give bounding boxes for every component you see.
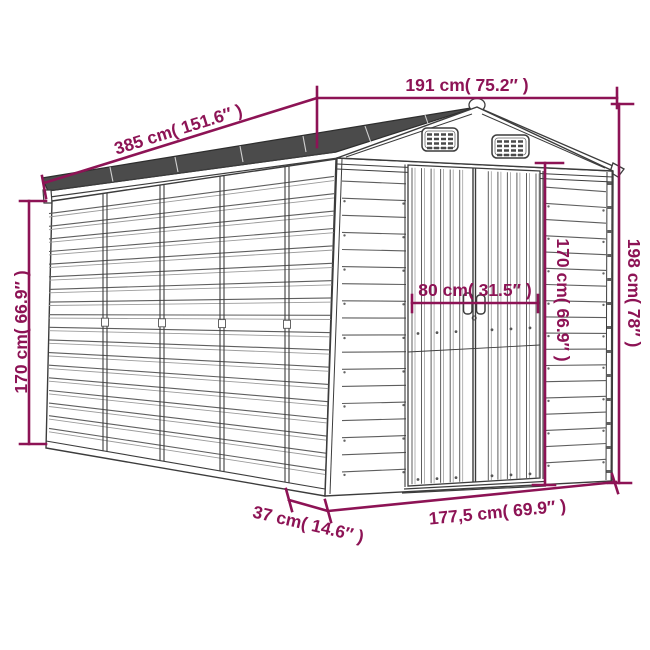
screw-dot xyxy=(417,478,420,481)
screw-dot xyxy=(547,367,549,369)
left-side-wall xyxy=(46,159,336,496)
screw-dot xyxy=(402,270,404,272)
dim-label-door-height: 170 cm( 66.9″ ) xyxy=(553,238,573,361)
screw-dot xyxy=(343,268,345,270)
screw-dot xyxy=(455,476,458,479)
screw-dot xyxy=(547,465,549,467)
screw-dot xyxy=(491,474,494,477)
dim-label-side-wall-height: 170 cm( 66.9″ ) xyxy=(11,270,31,393)
screw-dot xyxy=(402,370,404,372)
screw-dot xyxy=(547,432,549,434)
siding-line xyxy=(342,352,406,353)
siding-line xyxy=(49,315,334,316)
screw-dot xyxy=(343,474,345,476)
screw-dot xyxy=(529,327,532,330)
screw-dot xyxy=(455,330,458,333)
screw-dot xyxy=(402,437,404,439)
screw-dot xyxy=(602,241,604,243)
screw-dot xyxy=(510,328,513,331)
screw-dot xyxy=(417,332,420,335)
screw-dot xyxy=(436,477,439,480)
diagram-canvas: 191 cm( 75.2″ ) 385 cm( 151.6″ ) 170 cm(… xyxy=(0,0,650,650)
screw-dot xyxy=(402,471,404,473)
batten-clip xyxy=(219,320,226,328)
screw-dot xyxy=(602,367,604,369)
screw-dot xyxy=(602,209,604,211)
screw-dot xyxy=(602,272,604,274)
screw-dot xyxy=(602,304,604,306)
dim-label-base-front-width: 177,5 cm( 69.9″ ) xyxy=(428,495,567,528)
shed-dimension-diagram: 191 cm( 75.2″ ) 385 cm( 151.6″ ) 170 cm(… xyxy=(0,0,650,650)
dim-roof-front-width: 191 cm( 75.2″ ) xyxy=(317,75,617,108)
screw-dot xyxy=(602,461,604,463)
screw-dot xyxy=(343,337,345,339)
batten-clip xyxy=(159,319,166,327)
screw-dot xyxy=(547,205,549,207)
dim-total-height: 198 cm( 78″ ) xyxy=(608,104,644,483)
screw-dot xyxy=(343,440,345,442)
screw-dot xyxy=(402,404,404,406)
screw-dot xyxy=(491,328,494,331)
screw-dot xyxy=(547,238,549,240)
screw-dot xyxy=(547,400,549,402)
screw-dot xyxy=(602,398,604,400)
screw-dot xyxy=(547,270,549,272)
siding-line xyxy=(546,365,606,366)
screw-dot xyxy=(343,303,345,305)
dim-label-roof-front-width: 191 cm( 75.2″ ) xyxy=(405,75,528,95)
screw-dot xyxy=(343,371,345,373)
dim-base-side-offset: 37 cm( 14.6″ ) xyxy=(251,489,366,547)
screw-dot xyxy=(402,236,404,238)
screw-dot xyxy=(547,335,549,337)
gable-vent-left xyxy=(422,128,458,151)
screw-dot xyxy=(402,337,404,339)
screw-dot xyxy=(602,430,604,432)
dim-side-wall-height: 170 cm( 66.9″ ) xyxy=(11,201,46,444)
siding-line xyxy=(342,301,406,302)
screw-dot xyxy=(402,303,404,305)
screw-dot xyxy=(547,303,549,305)
gable-vent-right xyxy=(492,135,529,158)
batten-clip xyxy=(284,320,291,328)
double-doors xyxy=(402,165,546,494)
batten-clip xyxy=(102,318,109,326)
screw-dot xyxy=(343,405,345,407)
screw-dot xyxy=(510,474,513,477)
screw-dot xyxy=(402,202,404,204)
dim-label-door-width: 80 cm( 31.5″ ) xyxy=(418,280,531,300)
screw-dot xyxy=(343,234,345,236)
screw-dot xyxy=(529,473,532,476)
screw-dot xyxy=(602,335,604,337)
screw-dot xyxy=(343,200,345,202)
screw-dot xyxy=(436,331,439,334)
dim-label-total-height: 198 cm( 78″ ) xyxy=(624,239,644,348)
